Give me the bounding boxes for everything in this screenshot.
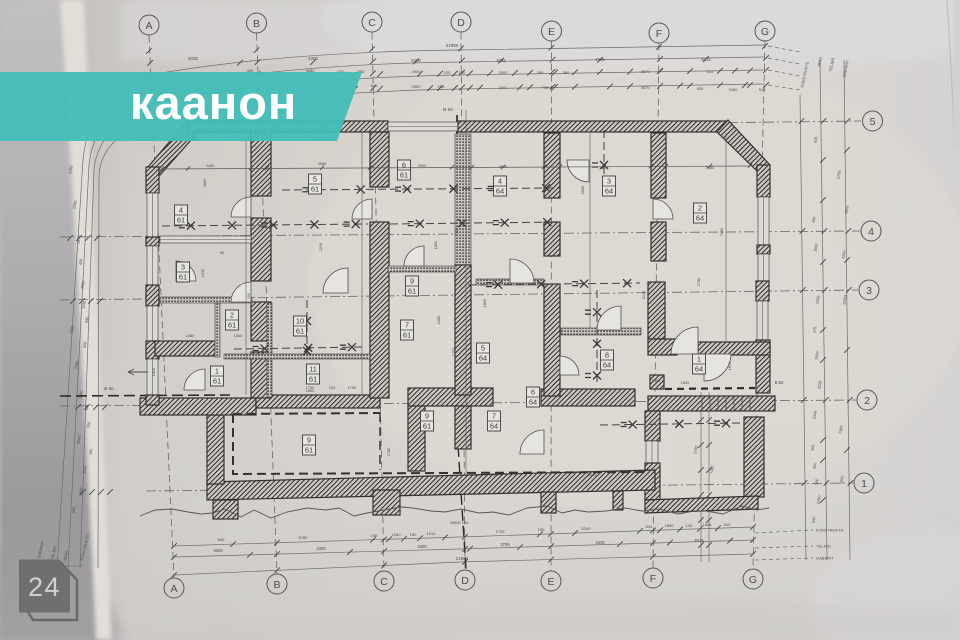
svg-text:3670: 3670 xyxy=(641,69,651,74)
svg-text:1880: 1880 xyxy=(482,298,487,307)
svg-text:1600: 1600 xyxy=(681,380,690,385)
svg-text:61: 61 xyxy=(177,216,185,225)
svg-text:1250: 1250 xyxy=(451,347,456,356)
svg-text:A: A xyxy=(170,583,177,595)
svg-text:5580: 5580 xyxy=(580,185,585,194)
svg-text:1: 1 xyxy=(861,478,867,490)
svg-text:61: 61 xyxy=(309,375,317,384)
svg-text:64: 64 xyxy=(603,361,611,370)
svg-text:3: 3 xyxy=(607,177,611,186)
svg-text:11: 11 xyxy=(309,365,317,374)
svg-text:4025: 4025 xyxy=(188,56,198,61)
svg-text:D: D xyxy=(457,17,465,29)
svg-text:64: 64 xyxy=(529,398,537,407)
svg-text:61: 61 xyxy=(408,287,416,296)
svg-text:3670: 3670 xyxy=(641,85,651,90)
svg-text:E: E xyxy=(547,576,554,588)
svg-text:61: 61 xyxy=(311,185,319,194)
svg-text:2: 2 xyxy=(698,204,702,213)
svg-text:1670: 1670 xyxy=(727,361,732,370)
svg-text:61: 61 xyxy=(296,327,304,336)
svg-text:64: 64 xyxy=(696,214,704,223)
svg-text:3400: 3400 xyxy=(417,544,427,549)
svg-text:2900: 2900 xyxy=(499,70,509,75)
svg-text:1800: 1800 xyxy=(306,388,315,393)
svg-text:640: 640 xyxy=(218,537,225,542)
svg-text:640: 640 xyxy=(646,524,653,529)
svg-text:4: 4 xyxy=(498,177,502,186)
svg-text:1600: 1600 xyxy=(151,367,156,376)
svg-text:B: B xyxy=(273,579,280,591)
svg-text:21980: 21980 xyxy=(446,43,459,48)
svg-text:510: 510 xyxy=(724,522,731,527)
svg-text:D: D xyxy=(461,575,469,587)
svg-text:1280: 1280 xyxy=(392,532,402,537)
svg-text:B 60: B 60 xyxy=(104,386,114,391)
svg-text:10: 10 xyxy=(296,317,304,326)
svg-text:64: 64 xyxy=(605,187,613,196)
svg-text:2900: 2900 xyxy=(412,69,422,74)
svg-text:6: 6 xyxy=(531,388,535,397)
svg-text:A: A xyxy=(145,20,152,32)
svg-text:1725: 1725 xyxy=(496,529,506,534)
svg-text:150: 150 xyxy=(410,532,417,537)
svg-text:635: 635 xyxy=(697,86,704,91)
svg-text:2780: 2780 xyxy=(386,447,391,456)
svg-text:2: 2 xyxy=(230,311,234,320)
svg-text:5240: 5240 xyxy=(582,526,592,531)
svg-text:4: 4 xyxy=(868,226,874,238)
svg-text:3680: 3680 xyxy=(318,161,327,166)
svg-text:5240: 5240 xyxy=(588,472,597,477)
svg-text:4335: 4335 xyxy=(595,540,605,545)
svg-text:7: 7 xyxy=(405,321,409,330)
svg-text:355: 355 xyxy=(537,70,544,75)
svg-text:1800: 1800 xyxy=(652,378,661,383)
svg-text:4: 4 xyxy=(179,206,183,215)
svg-text:F: F xyxy=(650,573,656,585)
svg-text:C: C xyxy=(368,17,376,29)
svg-text:4015: 4015 xyxy=(701,57,711,62)
svg-text:61: 61 xyxy=(423,422,431,431)
svg-text:1880: 1880 xyxy=(433,240,438,249)
svg-text:705: 705 xyxy=(542,85,549,90)
svg-text:1: 1 xyxy=(215,367,219,376)
svg-text:7: 7 xyxy=(492,412,496,421)
svg-text:9: 9 xyxy=(410,277,414,286)
svg-text:TELJED: TELJED xyxy=(816,544,831,549)
svg-text:2900: 2900 xyxy=(418,163,427,168)
svg-text:2: 2 xyxy=(864,395,870,407)
svg-text:9: 9 xyxy=(307,436,311,445)
svg-text:1760: 1760 xyxy=(348,385,357,390)
svg-text:4300: 4300 xyxy=(308,56,318,61)
svg-text:150: 150 xyxy=(329,385,336,390)
svg-text:61: 61 xyxy=(179,273,187,282)
svg-text:2240: 2240 xyxy=(318,242,323,251)
svg-text:B 60: B 60 xyxy=(443,107,453,113)
svg-text:61: 61 xyxy=(400,171,408,180)
svg-text:2900: 2900 xyxy=(412,84,422,89)
svg-text:1880: 1880 xyxy=(665,523,675,528)
svg-text:F: F xyxy=(656,28,662,40)
svg-text:510: 510 xyxy=(759,87,766,92)
svg-text:2240: 2240 xyxy=(200,268,205,277)
svg-text:GABARIT: GABARIT xyxy=(816,556,834,561)
svg-text:B: B xyxy=(253,18,260,30)
svg-text:E: E xyxy=(548,26,555,38)
svg-text:150: 150 xyxy=(246,292,251,299)
svg-text:4015: 4015 xyxy=(694,538,704,543)
svg-text:64: 64 xyxy=(496,187,504,196)
svg-text:1800: 1800 xyxy=(490,472,499,477)
svg-text:5: 5 xyxy=(313,175,317,184)
svg-text:5240: 5240 xyxy=(641,290,646,299)
svg-text:8: 8 xyxy=(605,351,609,360)
svg-text:360: 360 xyxy=(563,70,570,75)
svg-text:G: G xyxy=(761,26,769,38)
svg-text:150: 150 xyxy=(371,533,378,538)
svg-text:1614: 1614 xyxy=(427,531,437,536)
svg-text:64: 64 xyxy=(695,365,703,374)
svg-text:140: 140 xyxy=(686,523,693,528)
svg-text:150: 150 xyxy=(468,358,473,365)
svg-text:1: 1 xyxy=(697,355,701,364)
svg-text:5785: 5785 xyxy=(299,535,309,540)
svg-text:G: G xyxy=(749,574,757,586)
svg-text:3400: 3400 xyxy=(206,163,215,168)
svg-text:5: 5 xyxy=(870,116,876,128)
svg-text:18900 165: 18900 165 xyxy=(450,520,470,525)
svg-text:3480: 3480 xyxy=(729,87,739,92)
svg-text:3880: 3880 xyxy=(202,178,207,187)
svg-text:5: 5 xyxy=(481,344,485,353)
svg-text:1680: 1680 xyxy=(436,315,441,324)
svg-text:KONSTRUKTS: KONSTRUKTS xyxy=(816,528,844,533)
svg-text:4300: 4300 xyxy=(316,546,326,551)
svg-text:61: 61 xyxy=(305,446,313,455)
svg-text:2780: 2780 xyxy=(696,277,701,286)
svg-text:24: 24 xyxy=(28,572,61,602)
svg-text:1546: 1546 xyxy=(703,522,713,527)
svg-text:64: 64 xyxy=(490,422,498,431)
svg-text:C: C xyxy=(380,576,388,588)
svg-text:3795: 3795 xyxy=(500,542,510,547)
svg-text:B.60: B.60 xyxy=(775,380,784,385)
svg-text:2900: 2900 xyxy=(499,85,509,90)
svg-text:61: 61 xyxy=(403,331,411,340)
svg-text:7180: 7180 xyxy=(719,227,724,236)
svg-text:каанон: каанон xyxy=(130,76,297,129)
svg-text:315: 315 xyxy=(707,69,714,74)
svg-text:9: 9 xyxy=(425,412,429,421)
svg-text:61: 61 xyxy=(213,377,221,386)
svg-text:64: 64 xyxy=(479,354,487,363)
svg-text:4025: 4025 xyxy=(213,548,223,553)
svg-text:3: 3 xyxy=(181,263,185,272)
svg-text:1880: 1880 xyxy=(186,333,195,338)
svg-text:1540: 1540 xyxy=(234,333,243,338)
svg-text:61: 61 xyxy=(228,321,236,330)
svg-text:100: 100 xyxy=(444,70,451,75)
svg-text:7180: 7180 xyxy=(454,227,459,236)
svg-text:3: 3 xyxy=(866,285,872,297)
svg-text:150: 150 xyxy=(538,527,545,532)
svg-text:6: 6 xyxy=(402,161,406,170)
